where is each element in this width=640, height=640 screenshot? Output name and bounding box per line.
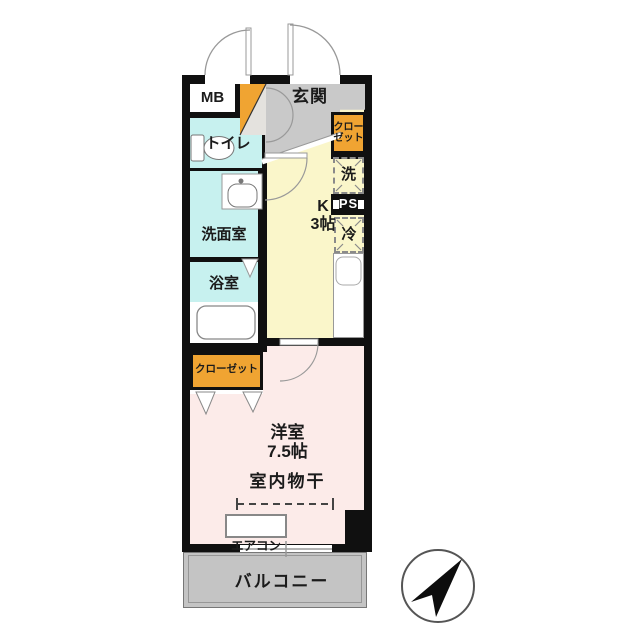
bedroom-door-arc [280,343,318,381]
label-closet-bottom: クローゼット [191,354,262,386]
entrance-door-arc [290,25,340,75]
label-kitchen-line1: K [317,198,329,216]
label-aircon: エアコン [222,538,290,554]
label-closet-top-line1: クロー [334,122,364,133]
label-bedroom-line1: 洋室 [271,423,305,442]
label-balcony: バルコニー [212,568,352,596]
mb-door-leaf [246,28,251,75]
bathtub [197,306,255,339]
label-indoor-drying-text: 室内物干 [250,472,326,491]
floor-plan: MB 玄関 クロー ゼット トイレ 洗面室 浴室 洗 PS 冷 K 3帖 クロー… [0,0,640,640]
label-washer: 洗 [333,160,364,191]
hall-door-leaf [265,153,307,158]
cabinet-door-arc-bottom [266,115,293,142]
label-closet-top-line2: ゼット [334,133,364,144]
washbasin-faucet [239,179,244,184]
bedroom-door-leaf [280,339,318,345]
label-toilet-text: トイレ [205,136,250,153]
label-bedroom: 洋室 7.5帖 [235,418,340,466]
label-entrance-text: 玄関 [292,87,328,106]
label-washer-text: 洗 [341,167,356,184]
label-mb-text: MB [201,90,224,107]
mb-door-arc [205,30,250,75]
closet-fold-door-right [243,392,262,412]
label-bedroom-line2: 7.5帖 [267,442,308,461]
label-indoor-drying: 室内物干 [230,470,345,494]
label-closet-bottom-text: クローゼット [195,364,258,376]
label-bathroom: 浴室 [193,273,255,295]
label-closet-top: クロー ゼット [332,114,365,152]
kitchen-sink [336,257,361,285]
label-entrance: 玄関 [282,85,338,109]
label-washroom: 洗面室 [190,224,258,246]
label-aircon-text: エアコン [231,539,281,553]
label-bathroom-text: 浴室 [209,276,239,293]
entrance-door-leaf [288,24,293,75]
label-toilet: トイレ [198,132,258,156]
label-washroom-text: 洗面室 [201,227,246,244]
closet-fold-door-left [196,392,215,414]
label-kitchen: K 3帖 [296,193,350,239]
label-balcony-text: バルコニー [235,572,330,591]
label-mb: MB [190,84,235,112]
washbasin-bowl [228,184,257,207]
label-kitchen-line2: 3帖 [311,216,336,234]
